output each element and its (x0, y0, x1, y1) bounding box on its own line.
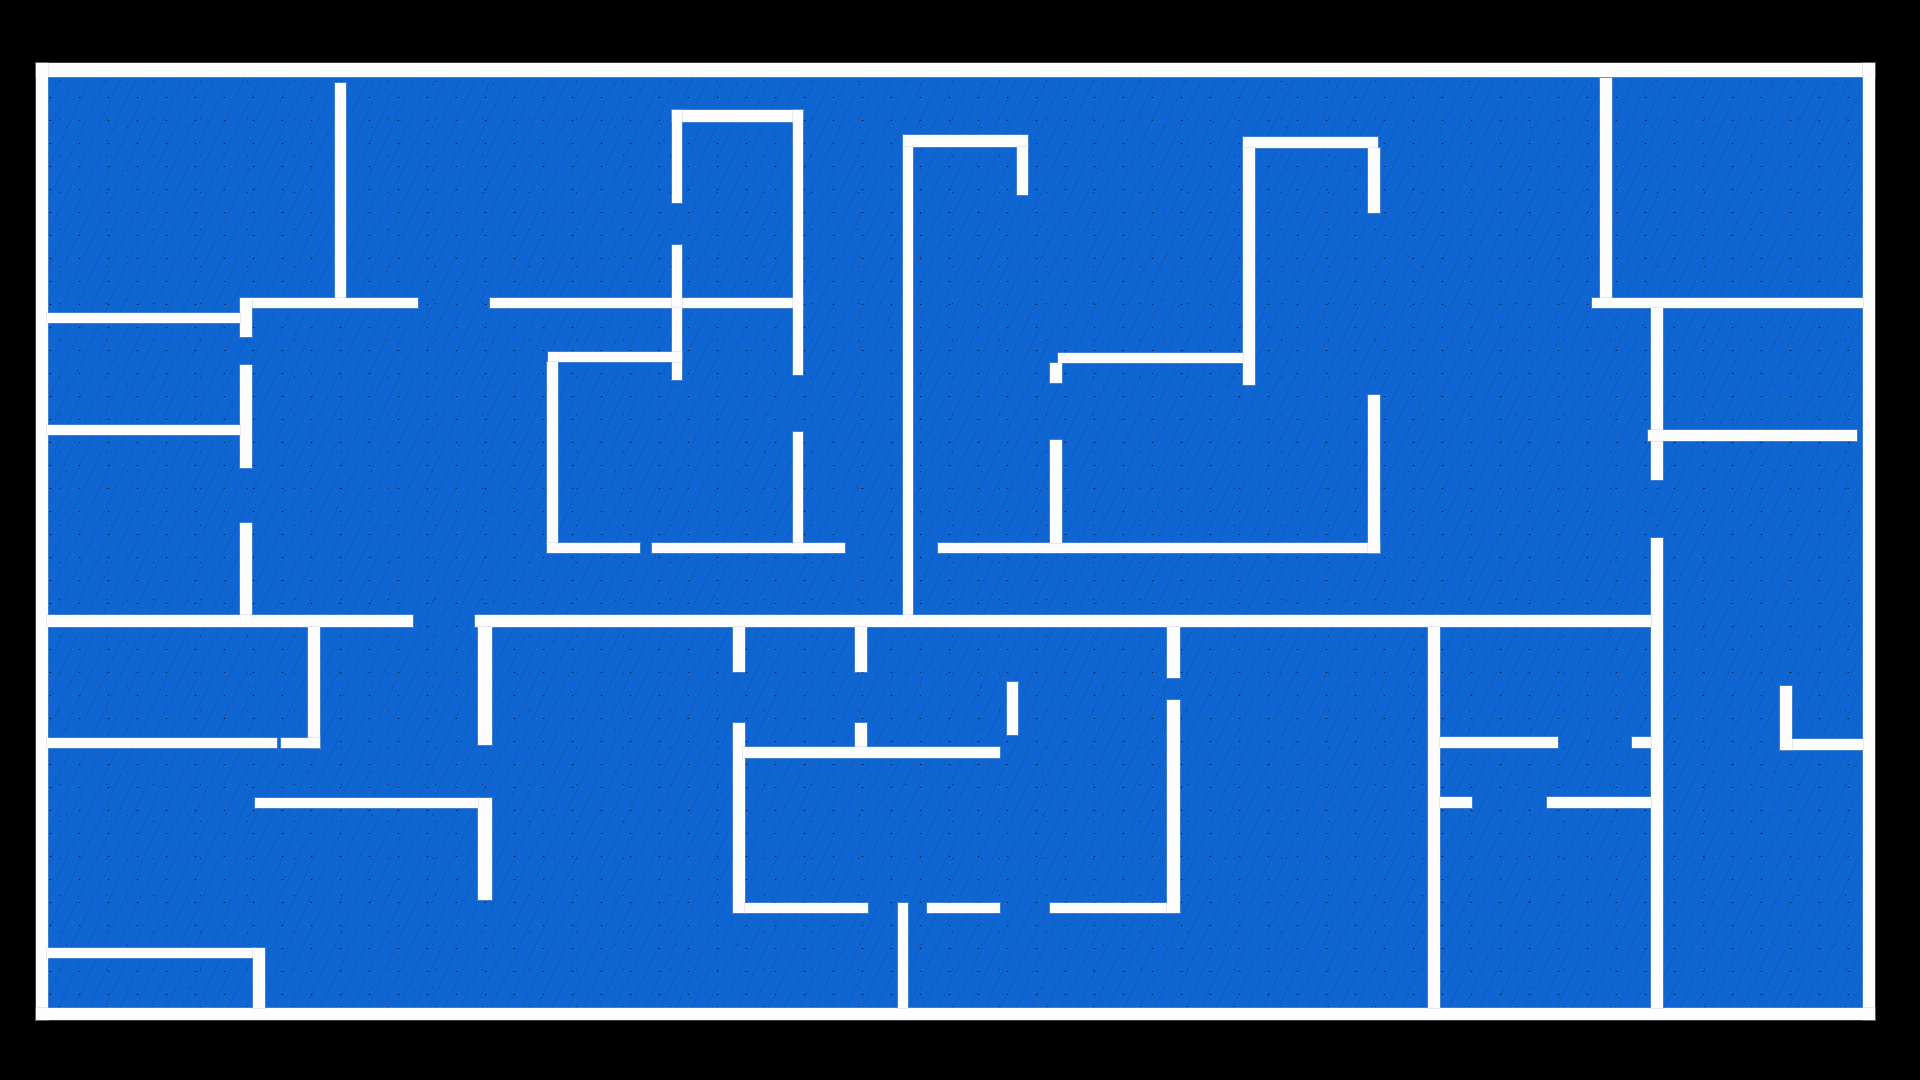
wall-segment (672, 110, 682, 203)
wall-segment (240, 523, 252, 615)
wall-segment (1167, 627, 1180, 678)
border-left (36, 63, 48, 1020)
wall-segment (652, 543, 845, 553)
wall-segment (733, 627, 745, 672)
wall-segment (793, 110, 803, 375)
wall-segment (478, 627, 492, 745)
wall-segment (240, 365, 252, 468)
wall-segment (1243, 137, 1378, 148)
wall-segment (1368, 148, 1380, 213)
border-bottom (36, 1008, 1875, 1020)
wall-segment (938, 543, 1380, 553)
wall-segment (548, 352, 682, 362)
wall-segment (1058, 353, 1243, 363)
wall-segment (1007, 682, 1018, 735)
wall-segment (1050, 440, 1062, 543)
wall-segment (1243, 148, 1255, 385)
wall-segment (855, 627, 867, 672)
wall-segment (308, 627, 320, 748)
wall-segment (672, 245, 682, 308)
wall-segment (672, 308, 682, 380)
wall-segment (927, 903, 1000, 913)
wall-segment (478, 798, 492, 900)
wall-segment (1440, 737, 1558, 748)
border-top (36, 63, 1875, 77)
wall-segment (1167, 700, 1180, 913)
wall-segment (1592, 298, 1863, 308)
wall-segment (1368, 395, 1380, 553)
wall-segment (47, 615, 413, 627)
wall-segment (1440, 797, 1472, 808)
wall-segment (1780, 686, 1792, 750)
wall-segment (1600, 78, 1612, 298)
wall-segment (47, 313, 240, 323)
wall-segment (335, 83, 346, 298)
wall-segment (281, 738, 320, 748)
wall-segment (1651, 308, 1663, 480)
wall-segment (1050, 903, 1168, 913)
wall-segment (240, 298, 252, 337)
wall-segment (490, 298, 803, 308)
wall-segment (898, 903, 908, 1008)
wall-segment (1651, 538, 1663, 1008)
wall-segment (547, 543, 640, 553)
wall-segment (475, 615, 1651, 627)
wall-segment (672, 110, 803, 122)
wall-segment (903, 147, 913, 615)
wall-segment (793, 432, 803, 553)
wall-segment (47, 738, 277, 748)
wall-segment (252, 298, 418, 308)
wall-segment (743, 747, 1000, 758)
wall-segment (255, 798, 478, 808)
border-right (1863, 63, 1875, 1020)
wall-segment (47, 425, 240, 435)
wall-segment (1632, 737, 1651, 748)
wall-segment (1648, 430, 1857, 441)
wall-segment (855, 723, 867, 747)
wall-segment (253, 948, 265, 1008)
wall-segment (903, 135, 1028, 147)
wall-segment (1547, 797, 1651, 808)
wall-segment (1782, 739, 1863, 750)
wall-segment (1017, 147, 1028, 195)
wall-segment (1428, 627, 1440, 1008)
wall-segment (547, 362, 558, 543)
wall-segment (745, 903, 868, 913)
wall-segment (1050, 363, 1062, 383)
wall-segment (47, 948, 255, 958)
page-background (0, 0, 1920, 1080)
